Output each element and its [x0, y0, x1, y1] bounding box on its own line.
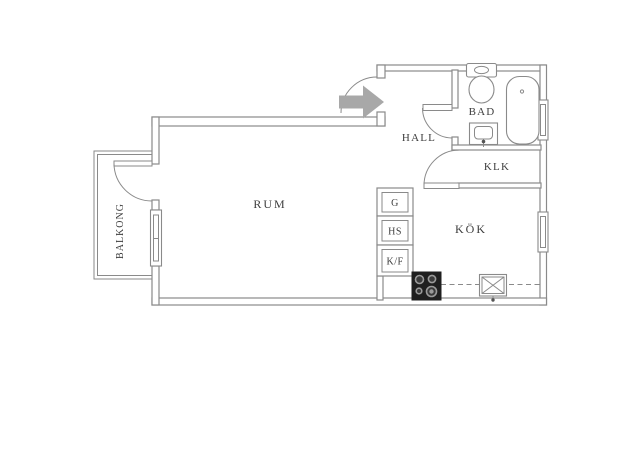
wall-left-upper: [152, 117, 159, 164]
wall-rum-kitchen-lower: [377, 276, 383, 300]
floor-plan: RUM KÖK HALL BAD KLK BALKONG G HS K/F: [0, 0, 640, 452]
closet-label-hs: HS: [388, 227, 402, 238]
wall-left-lower: [152, 266, 159, 305]
room-label-rum: RUM: [253, 197, 286, 211]
closet-label-g: G: [391, 198, 399, 209]
washbasin-icon: [470, 123, 498, 147]
room-label-bad: BAD: [469, 106, 496, 118]
wall-top: [377, 65, 546, 71]
kitchen-fixtures: [412, 272, 540, 302]
wall-entry-stub-bottom: [377, 112, 385, 126]
wall-entry-stub-top: [377, 65, 385, 78]
room-label-kok: KÖK: [455, 222, 487, 236]
wall-left-mid: [152, 200, 159, 210]
wall-kok-top: [458, 183, 541, 188]
room-label-balkong: BALKONG: [115, 203, 126, 259]
window-kok: [538, 212, 548, 252]
wall-bad-left-upper: [452, 70, 458, 108]
wall-klk-top: [452, 145, 541, 150]
bathtub-icon: [507, 77, 540, 145]
stove-icon: [412, 272, 441, 300]
room-label-klk: KLK: [484, 161, 510, 173]
room-label-hall: HALL: [402, 132, 436, 144]
wall-rum-top: [152, 117, 385, 126]
floor-plan-canvas: RUM KÖK HALL BAD KLK BALKONG G HS K/F: [0, 0, 640, 452]
window-rum: [151, 210, 162, 266]
wall-bottom: [152, 298, 547, 305]
klk-door: [424, 150, 459, 189]
balcony-door: [114, 161, 152, 201]
toilet-icon: [467, 64, 497, 104]
closet-label-kf: K/F: [386, 257, 403, 268]
